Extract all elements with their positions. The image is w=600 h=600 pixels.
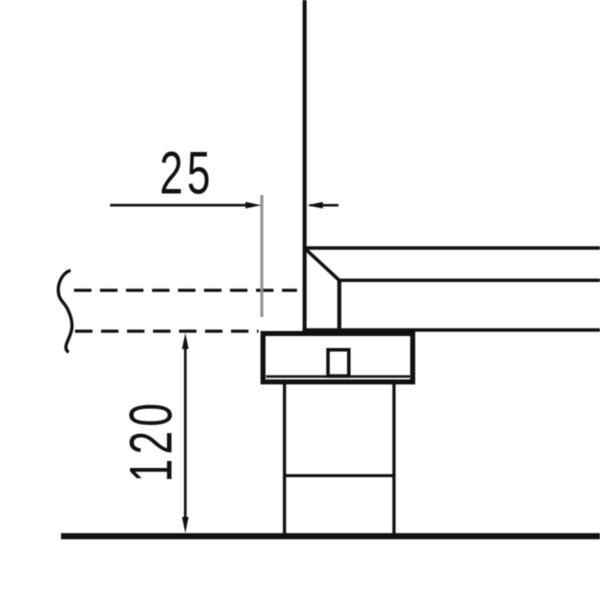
svg-text:120: 120 xyxy=(117,399,184,482)
svg-text:25: 25 xyxy=(160,139,215,206)
